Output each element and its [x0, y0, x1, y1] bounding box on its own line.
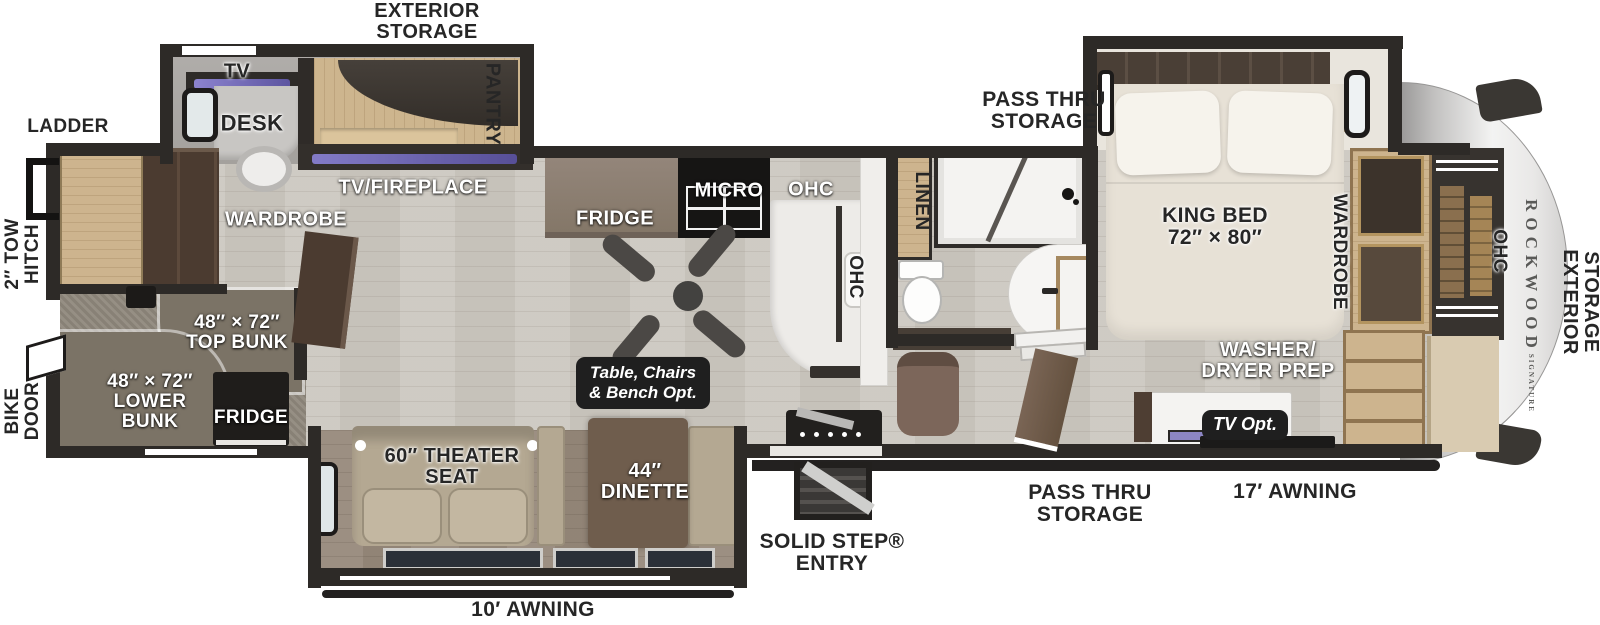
ladder-icon	[26, 158, 59, 220]
king-slide-window	[1344, 70, 1370, 138]
label-ohc-island: OHC	[845, 255, 865, 298]
label-washer-dryer: WASHER/DRYER PREP	[1201, 340, 1334, 382]
king-slide-wall-right	[1388, 36, 1402, 152]
slide-window-strip	[383, 548, 543, 570]
theater-awning-tube	[322, 590, 734, 598]
king-slide-wall-top	[1083, 36, 1403, 49]
top-wall-right	[1398, 143, 1470, 155]
label-theater-seat: 60″ THEATERSEAT	[385, 446, 520, 488]
label-ohc-front: OHC	[1489, 229, 1509, 272]
closet-shelves	[1440, 186, 1464, 298]
label-exterior-storage-right: EXTERIORSTORAGE	[1559, 249, 1600, 354]
bed-pillow	[1227, 90, 1334, 176]
dinette-bench	[537, 426, 565, 546]
label-linen: LINEN	[911, 172, 931, 231]
rear-cabinet	[60, 148, 143, 290]
bed-seam	[1106, 182, 1344, 184]
theater-seat-cushion	[448, 488, 528, 544]
bedroom-dresser	[1343, 330, 1425, 452]
bunk-fridge-counter	[216, 440, 286, 445]
label-ladder: LADDER	[27, 117, 109, 137]
tv-option-badge: TV Opt.	[1202, 410, 1288, 440]
brand-rockwood: ROCKWOODSIGNATURE	[1522, 199, 1540, 413]
top-wall-left	[55, 143, 170, 156]
wardrobe-left-unit	[143, 148, 219, 293]
entry-griddle-dots	[800, 432, 805, 437]
tow-hitch-mount	[126, 286, 156, 308]
desk-chair	[236, 146, 292, 192]
theater-slide-wall-left	[308, 426, 321, 588]
floorplan-diagram: EXTERIORSTORAGE LADDER 2″ TOWHITCH BIKED…	[0, 0, 1600, 625]
closet-rod-top	[1436, 160, 1498, 163]
desk-slide-window-gap	[182, 46, 256, 55]
label-awning-10: 10′ AWNING	[471, 599, 595, 621]
label-wardrobe-left: WARDROBE	[225, 209, 347, 230]
label-pass-thru-bottom: PASS THRUSTORAGE	[1028, 482, 1151, 527]
table-option-badge: Table, Chairs& Bench Opt.	[576, 357, 710, 409]
bed-pillow	[1115, 90, 1222, 176]
wardrobe-right-shelf	[1358, 244, 1424, 324]
ceiling-fan-hub	[673, 281, 703, 311]
tv-fireplace-screen	[312, 154, 517, 164]
slide-window-strip	[553, 548, 638, 570]
desk-slide-wall-left	[160, 44, 173, 164]
shower-head	[1062, 188, 1074, 200]
bedroom-crate	[1134, 392, 1152, 442]
label-exterior-storage-top: EXTERIORSTORAGE	[374, 1, 479, 43]
toilet-bowl	[902, 276, 942, 324]
wardrobe-right-shelf	[1358, 156, 1424, 236]
label-pantry: PANTRY	[481, 63, 502, 145]
label-dinette: 44″DINETTE	[601, 461, 689, 503]
theater-awning-stripe	[340, 576, 670, 580]
label-tow-hitch: 2″ TOWHITCH	[3, 218, 43, 289]
theater-cupholder	[355, 440, 366, 451]
bedroom-cabinet-light	[1427, 336, 1499, 452]
bunk-bottom-window	[145, 449, 257, 455]
label-fridge: FRIDGE	[576, 208, 654, 229]
label-bike-door: BIKEDOOR	[3, 382, 43, 441]
label-king-bed: KING BED72″ × 80″	[1162, 205, 1268, 250]
dinette-bench	[688, 426, 738, 546]
front-cap-corner-top	[1475, 75, 1543, 123]
entry-door-gap	[770, 446, 882, 456]
bathroom-wall-bottom	[898, 334, 1014, 346]
desk-slide-window	[182, 88, 218, 142]
label-lower-bunk: 48″ × 72″LOWERBUNK	[107, 372, 193, 432]
slide-window-strip	[645, 548, 715, 570]
desk-chair-brown	[897, 352, 959, 436]
counter-edge	[836, 206, 842, 342]
label-pass-thru-top: PASS THRUSTORAGE	[982, 89, 1105, 134]
label-desk: DESK	[221, 111, 284, 134]
bathroom-wall-left	[886, 146, 898, 348]
bathroom-wall-right	[1086, 146, 1098, 350]
label-top-bunk: 48″ × 72″TOP BUNK	[186, 313, 288, 353]
label-awning-17: 17′ AWNING	[1233, 481, 1357, 503]
label-micro: MICRO	[695, 180, 764, 201]
theater-seat-cushion	[362, 488, 442, 544]
label-ohc-kitchen: OHC	[788, 179, 834, 200]
label-solid-step: SOLID STEP®ENTRY	[760, 531, 905, 576]
top-wall-mid	[528, 146, 1088, 158]
label-tv-fireplace: TV/FIREPLACE	[338, 177, 487, 198]
label-tv: TV	[224, 61, 250, 82]
label-wardrobe-right: WARDROBE	[1329, 194, 1349, 310]
label-fridge-bunk: FRIDGE	[214, 408, 288, 428]
closet-rod-bottom	[1436, 306, 1498, 309]
vanity-faucet	[1042, 288, 1058, 294]
